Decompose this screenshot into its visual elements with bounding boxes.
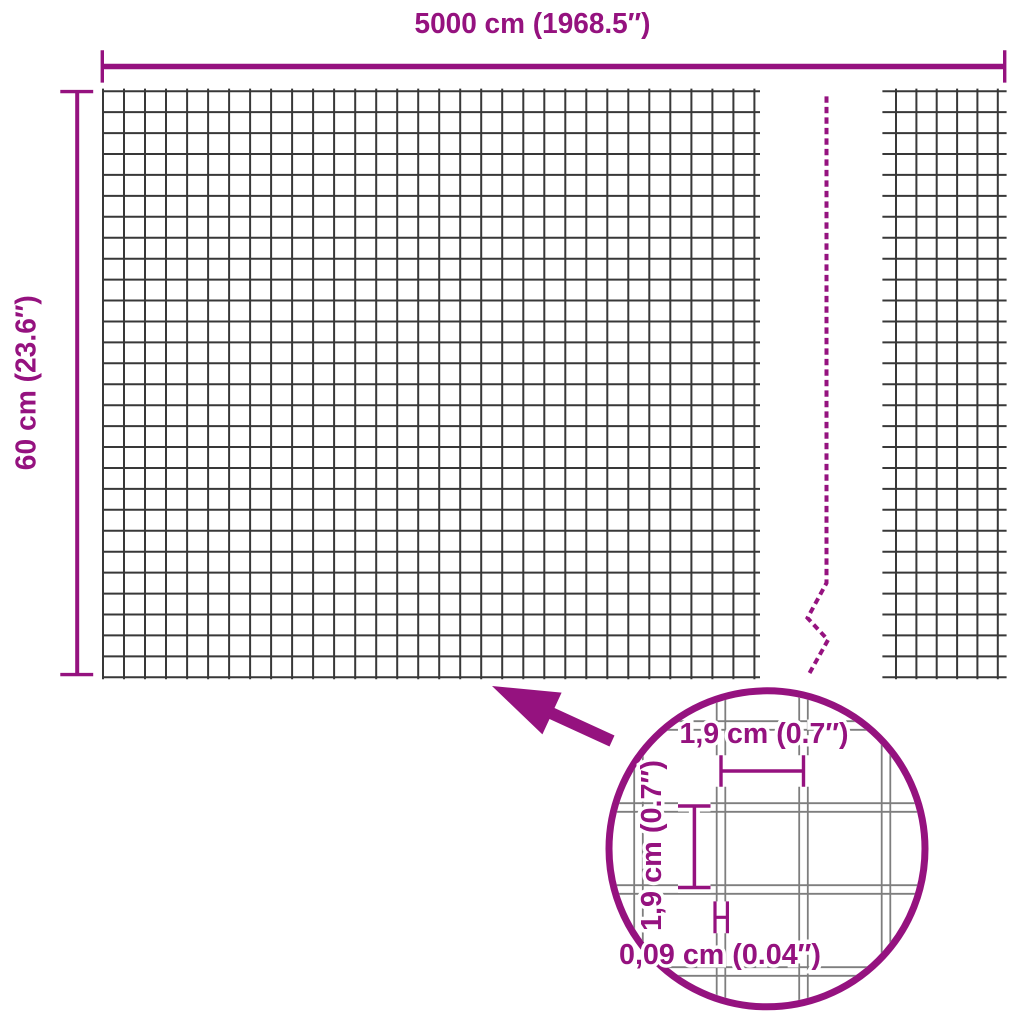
svg-text:60 cm (23.6″): 60 cm (23.6″) (11, 295, 43, 470)
svg-text:5000 cm (1968.5″): 5000 cm (1968.5″) (415, 8, 651, 40)
svg-text:1,9 cm (0.7″): 1,9 cm (0.7″) (680, 718, 849, 750)
svg-text:1,9 cm (0.7″): 1,9 cm (0.7″) (636, 760, 668, 931)
svg-text:0,09 cm (0.04″): 0,09 cm (0.04″) (619, 939, 821, 971)
